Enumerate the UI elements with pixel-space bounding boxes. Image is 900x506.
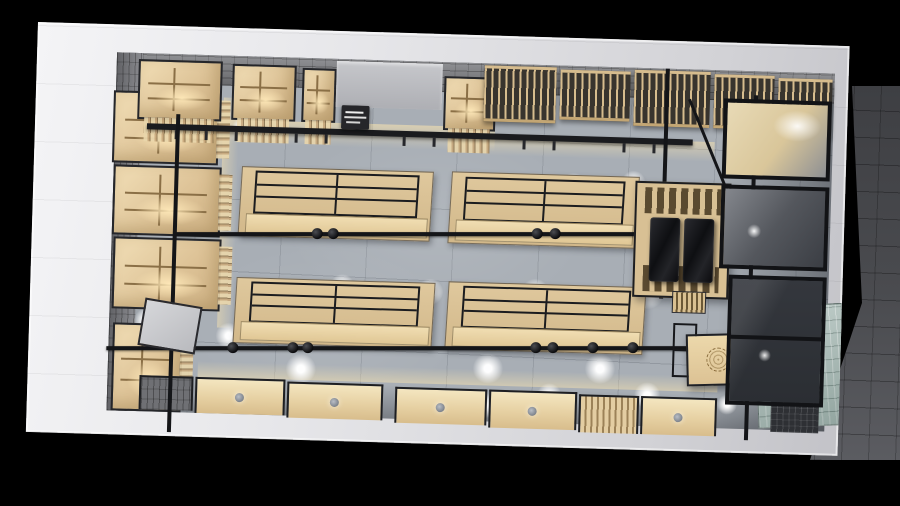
- beam-hanger: [235, 132, 238, 141]
- island-cubby-grid: [645, 187, 722, 215]
- hanging-sign: [341, 105, 370, 130]
- beam-hanger: [522, 140, 525, 149]
- beam-hanger: [622, 143, 625, 152]
- island-black-counter: [649, 217, 681, 282]
- gondola-display-table: [447, 171, 640, 248]
- beam-hanger: [552, 141, 555, 150]
- bottom-wall-unit: [139, 375, 194, 411]
- track-spotlight: [530, 342, 541, 353]
- bottom-wall-unit: [640, 396, 717, 436]
- wall-cabinet-bay: [301, 68, 337, 123]
- track-spotlight: [227, 342, 238, 353]
- ceiling-bulkhead: [336, 61, 443, 110]
- track-spotlight: [328, 228, 339, 239]
- beam-hanger: [295, 134, 298, 143]
- wall-cabinet-bay: [231, 64, 297, 122]
- leaning-panel: [137, 298, 202, 355]
- building-shell: [26, 22, 850, 456]
- track-spotlight: [302, 342, 313, 353]
- track-spotlight: [532, 228, 543, 239]
- timber-lattice-panel: [483, 65, 557, 123]
- gondola-display-table: [444, 281, 646, 355]
- track-spotlight: [547, 342, 558, 353]
- bottom-wall-unit: [194, 377, 285, 416]
- beam-hanger: [325, 135, 328, 144]
- beam-hanger: [402, 137, 405, 146]
- bottom-wall-unit: [394, 387, 487, 426]
- bottom-wall-unit: [578, 394, 639, 434]
- track-spotlight: [587, 342, 598, 353]
- store-render-canvas: [0, 0, 900, 506]
- track-spotlight: [550, 228, 561, 239]
- track-spotlight: [627, 342, 638, 353]
- display-island: [632, 181, 731, 300]
- wooden-crate-shelf: [672, 291, 707, 314]
- gondola-display-table: [232, 277, 435, 349]
- lighting-track-upper: [174, 232, 664, 236]
- bottom-wall-unit: [488, 390, 577, 431]
- window-display-box-glass: [719, 184, 829, 271]
- bottom-wall-unit: [286, 382, 383, 421]
- island-black-counter: [683, 218, 715, 283]
- wall-cabinet-bay: [137, 59, 223, 121]
- beam-hanger: [652, 144, 655, 153]
- wall-cabinet-bay: [112, 164, 222, 237]
- window-display-box-lit: [722, 98, 832, 181]
- beam-hanger: [205, 131, 208, 140]
- track-spotlight: [287, 342, 298, 353]
- timber-lattice-panel: [559, 70, 630, 122]
- beam-hanger: [432, 138, 435, 147]
- track-spotlight: [312, 228, 323, 239]
